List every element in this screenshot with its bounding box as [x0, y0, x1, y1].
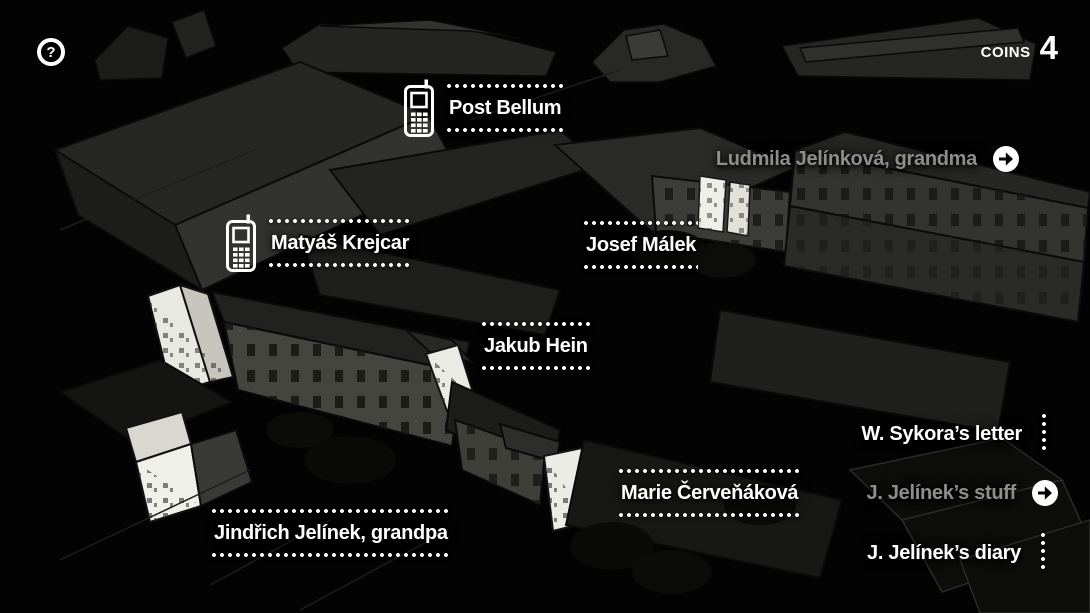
location-label: Josef Málek	[584, 234, 698, 256]
label-box: Josef Málek	[584, 221, 698, 269]
location-label: Post Bellum	[447, 97, 563, 119]
location-label: Jindřich Jelínek, grandpa	[212, 522, 450, 544]
location-post-bellum[interactable]: Post Bellum	[404, 84, 563, 132]
dotted-line	[447, 84, 563, 88]
location-jindrich-jelinek[interactable]: Jindřich Jelínek, grandpa	[212, 509, 450, 557]
dotted-line	[584, 265, 698, 269]
location-label: Matyáš Krejcar	[269, 232, 411, 254]
arrow-right-icon[interactable]	[1032, 480, 1058, 506]
label-box: Marie Červeňáková	[619, 469, 800, 517]
dotted-line	[619, 469, 800, 473]
coins-label: COINS	[981, 45, 1031, 60]
location-jakub-hein[interactable]: Jakub Hein	[482, 322, 590, 370]
location-jelinek-diary[interactable]: J. Jelínek’s diary	[865, 533, 1045, 573]
dotted-line	[212, 509, 450, 513]
location-label: Ludmila Jelínková, grandma	[714, 148, 979, 170]
dotted-line	[269, 219, 411, 223]
dotted-line	[447, 128, 563, 132]
help-button[interactable]: ?	[37, 38, 65, 66]
question-mark-icon: ?	[46, 45, 55, 60]
coins-value: 4	[1040, 31, 1058, 64]
location-marie-cervenakova[interactable]: Marie Červeňáková	[619, 469, 800, 517]
dotted-line	[482, 366, 590, 370]
location-sykora-letter[interactable]: W. Sykora’s letter	[859, 414, 1046, 454]
phone-icon[interactable]	[226, 214, 256, 272]
dotted-line-vertical	[1041, 533, 1045, 573]
location-jelinek-stuff[interactable]: J. Jelínek’s stuff	[865, 480, 1058, 506]
dotted-line	[584, 221, 698, 225]
location-ludmila-jelinkova[interactable]: Ludmila Jelínková, grandma	[714, 146, 1019, 172]
phone-icon[interactable]	[404, 79, 434, 137]
location-label: W. Sykora’s letter	[859, 423, 1024, 445]
dotted-line	[269, 263, 411, 267]
location-label: J. Jelínek’s stuff	[865, 482, 1018, 504]
label-box: Jindřich Jelínek, grandpa	[212, 509, 450, 557]
location-label: Jakub Hein	[482, 335, 590, 357]
dotted-line	[212, 553, 450, 557]
location-label: Marie Červeňáková	[619, 482, 800, 504]
label-box: Jakub Hein	[482, 322, 590, 370]
location-matyas-krejcar[interactable]: Matyáš Krejcar	[226, 219, 411, 267]
label-box: Post Bellum	[447, 84, 563, 132]
dotted-line-vertical	[1042, 414, 1046, 454]
arrow-right-icon[interactable]	[993, 146, 1019, 172]
coins-counter: COINS 4	[981, 31, 1058, 64]
location-label: J. Jelínek’s diary	[865, 542, 1023, 564]
game-screen: ? COINS 4 Post Bellum	[0, 0, 1090, 613]
dotted-line	[619, 513, 800, 517]
location-josef-malek[interactable]: Josef Málek	[584, 221, 698, 269]
dotted-line	[482, 322, 590, 326]
label-box: Matyáš Krejcar	[269, 219, 411, 267]
